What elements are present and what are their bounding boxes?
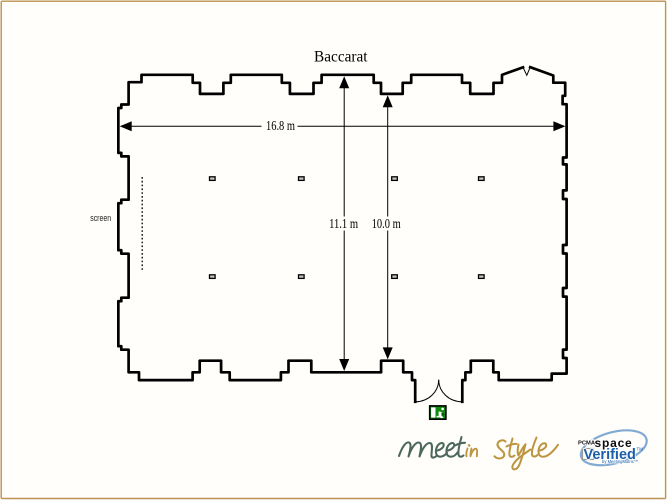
svg-text:TM: TM [637,447,644,452]
svg-text:16.8 m: 16.8 m [266,119,295,134]
svg-text:10.0 m: 10.0 m [372,217,401,232]
svg-text:by MeetingMatrix™: by MeetingMatrix™ [602,459,638,464]
svg-text:screen: screen [90,213,111,224]
svg-text:11.1 m: 11.1 m [329,217,358,232]
svg-text:PCMA: PCMA [578,441,596,447]
svg-text:Baccarat: Baccarat [314,47,368,66]
